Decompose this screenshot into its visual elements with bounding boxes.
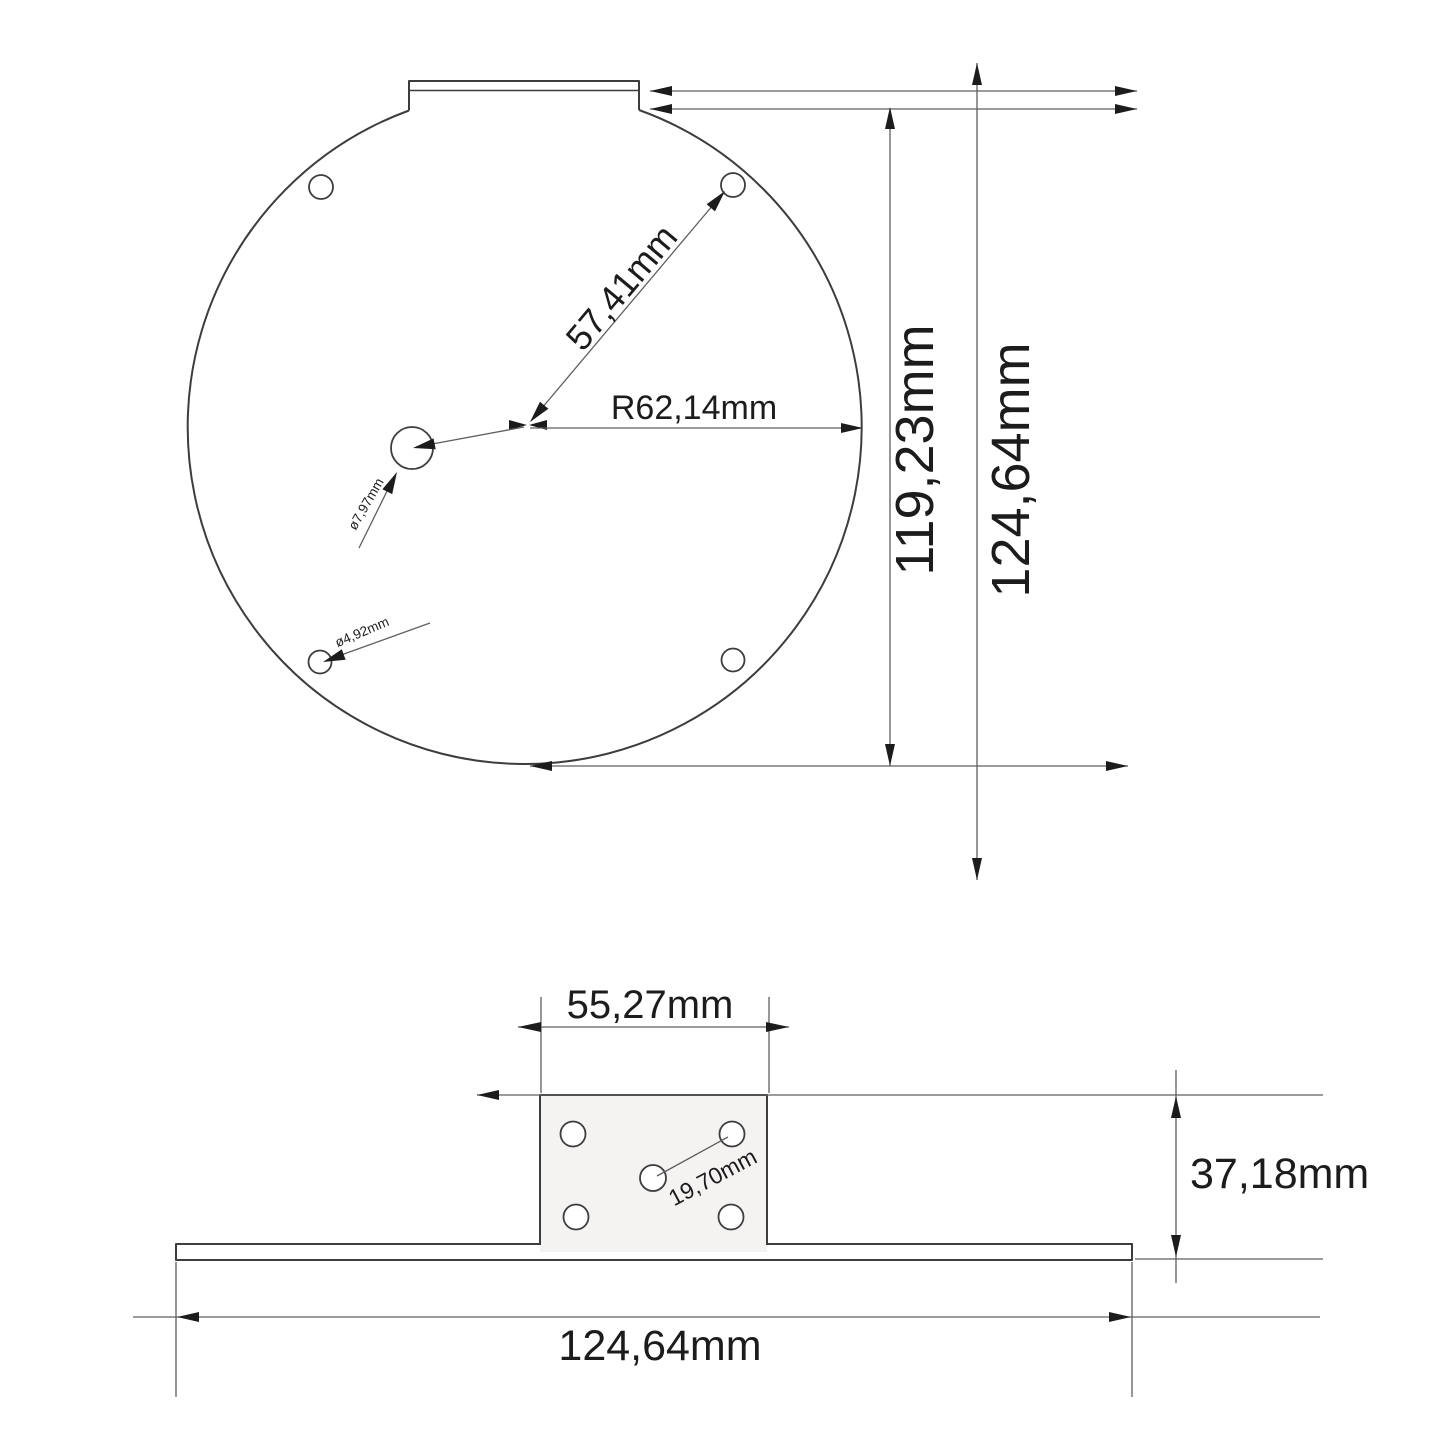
block-hole-center: [640, 1165, 666, 1191]
arrowhead-total-width-right: [1109, 1312, 1131, 1322]
arrowhead-radius-right: [841, 423, 863, 433]
hole-bottom-right: [722, 649, 745, 672]
drawing-svg: R62,14mm 57,41mm ø7,97mm ø4,92mm 119,: [0, 0, 1445, 1447]
label-total-height-dim: 124,64mm: [981, 342, 1041, 597]
arrowhead-total-height-top: [972, 63, 982, 85]
label-block-width-dim: 55,27mm: [567, 983, 734, 1027]
block-hole-top-left: [561, 1122, 586, 1147]
label-hole-diagonal-dim: 57,41mm: [557, 217, 685, 358]
arrowhead-ref-a-right: [1115, 86, 1137, 96]
label-corner-hole-diameter: ø4,92mm: [333, 614, 391, 650]
arrowhead-ref-bottom-left: [530, 761, 552, 771]
arrowhead-inner-height-top: [885, 107, 895, 129]
block-hole-bottom-left: [564, 1205, 589, 1230]
label-radius-dim: R62,14mm: [611, 389, 777, 427]
arrowhead-ref-a-left: [650, 86, 672, 96]
arrowhead-block-height-bottom: [1171, 1235, 1181, 1257]
arrowhead-ref-bottom-right: [1106, 761, 1128, 771]
arrowhead-ref-b-right: [1115, 104, 1137, 114]
label-total-width-dim: 124,64mm: [558, 1322, 761, 1370]
block-hole-top-right: [720, 1122, 745, 1147]
hole-top-left: [309, 175, 333, 199]
arrowhead-block-width-left: [518, 1022, 541, 1032]
label-inner-height-dim: 119,23mm: [885, 324, 945, 575]
arrowhead-diagonal-top: [707, 191, 725, 211]
arrowhead-ref-b-left: [650, 104, 672, 114]
hole-bottom-left: [309, 651, 332, 674]
block-hole-bottom-right: [719, 1205, 744, 1230]
arrowhead-diagonal-bottom: [530, 402, 548, 422]
arrowhead-inner-height-bottom: [885, 744, 895, 766]
arrowhead-block-top-left: [477, 1090, 499, 1100]
top-view: R62,14mm 57,41mm ø7,97mm ø4,92mm 119,: [188, 63, 1137, 880]
side-view: 19,70mm 55,27mm 37,18mm 124,64mm: [133, 983, 1369, 1397]
technical-drawing-canvas: R62,14mm 57,41mm ø7,97mm ø4,92mm 119,: [0, 0, 1445, 1447]
plate-outline-arc: [188, 110, 862, 764]
arrowhead-block-width-right: [766, 1022, 789, 1032]
tab-outline: [409, 81, 639, 111]
arrowhead-total-height-bottom: [972, 858, 982, 880]
label-block-height-dim: 37,18mm: [1190, 1150, 1369, 1198]
arrowhead-total-width-left: [177, 1312, 199, 1322]
arrowhead-block-height-top: [1171, 1096, 1181, 1118]
hole-top-right: [721, 173, 745, 197]
